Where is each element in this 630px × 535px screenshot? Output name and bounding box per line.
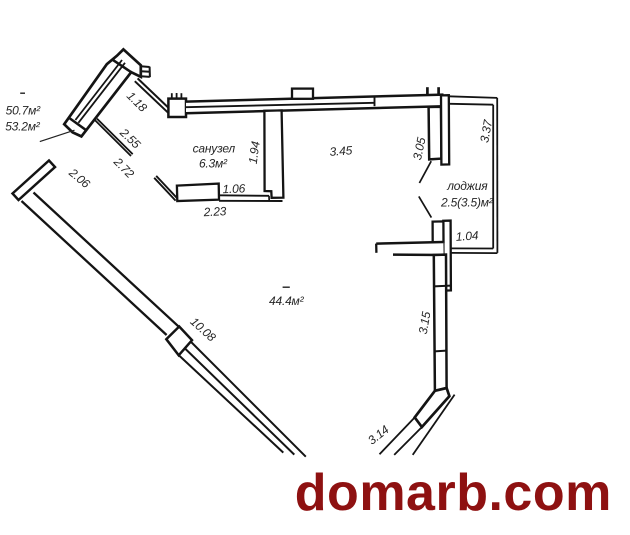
svg-text:2.23: 2.23 <box>202 204 227 219</box>
svg-text:50.7м²: 50.7м² <box>6 104 42 118</box>
svg-text:лоджия: лоджия <box>446 179 488 193</box>
svg-text:domarb.com: domarb.com <box>295 464 612 522</box>
svg-text:1.04: 1.04 <box>455 228 479 244</box>
svg-text:44.4м²: 44.4м² <box>269 294 305 308</box>
svg-text:санузел: санузел <box>193 142 236 156</box>
svg-text:6.3м²: 6.3м² <box>199 157 228 171</box>
svg-text:53.2м²: 53.2м² <box>5 120 41 134</box>
svg-text:1.06: 1.06 <box>222 181 246 196</box>
svg-text:3.45: 3.45 <box>329 143 353 159</box>
svg-text:2.5(3.5)м²: 2.5(3.5)м² <box>440 196 494 210</box>
